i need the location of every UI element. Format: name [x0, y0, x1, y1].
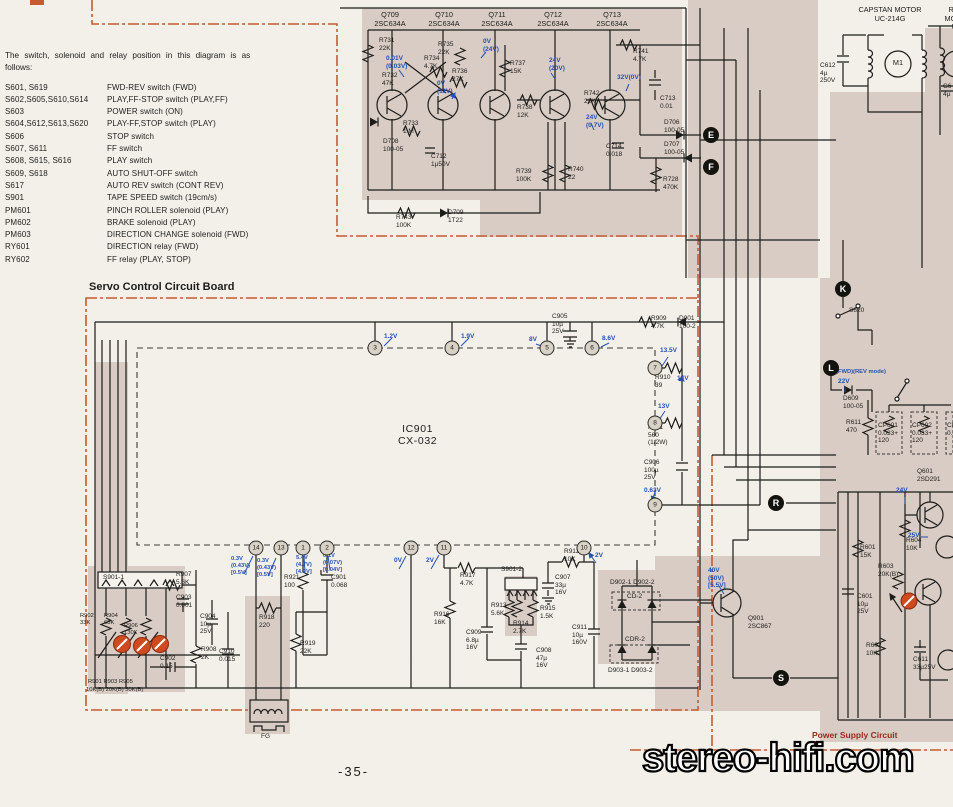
label-cp6: CP6 0.0: [947, 422, 953, 437]
legend-switch-id: S602,S605,S610,S614: [5, 94, 107, 106]
label-q710: Q710 2SC634A: [428, 11, 459, 28]
label-d708: D708 100-05: [383, 138, 403, 153]
legend-switch-desc: FF relay (PLAY, STOP): [107, 254, 191, 266]
label-r734: R734 4.7K: [424, 55, 440, 70]
terminal-r: R: [768, 495, 784, 511]
label-c713: C713 0.01: [660, 95, 676, 110]
legend-switch-id: S609, S618: [5, 168, 107, 180]
terminal-e: E: [703, 127, 719, 143]
ic-pin-9: 9: [648, 498, 663, 513]
label-r740: R740 22: [568, 166, 584, 181]
terminal-f: F: [703, 159, 719, 175]
label-c903: C903 0.001: [176, 594, 192, 609]
watermark: stereo-hifi.com: [642, 736, 914, 781]
label-c910: C910 0.015: [219, 648, 235, 663]
label-r602: R602 10K: [866, 642, 882, 657]
label-24v: 24V (20V): [549, 57, 565, 72]
ic-pin-7: 7: [648, 361, 663, 376]
label-40v: 40V (50V) [5.5V]: [708, 567, 726, 590]
label-r914: R914 2.7K: [513, 620, 529, 635]
legend: The switch, solenoid and relay position …: [5, 50, 329, 266]
label-c712: C712 1µ50V: [431, 153, 450, 168]
label-1.9v: 1.9V: [461, 333, 474, 341]
schematic-page: The switch, solenoid and relay position …: [0, 0, 953, 807]
label-q713: Q713 2SC634A: [596, 11, 627, 28]
label-s901-1: S901-1: [103, 574, 124, 582]
legend-intro: The switch, solenoid and relay position …: [5, 50, 329, 75]
label-c6: C6 4µ: [943, 83, 951, 98]
legend-switch-id: PM602: [5, 217, 107, 229]
label-r733: R733 1 M: [403, 120, 419, 135]
label-r921: R921 100: [284, 574, 300, 589]
label-c911: C911 10µ 160V: [572, 624, 587, 647]
legend-switch-desc: PLAY-FF,STOP switch (PLAY): [107, 118, 216, 130]
legend-row: S606STOP switch: [5, 131, 329, 143]
label-0.01v: 0.01V (0.03V): [386, 55, 407, 70]
label-d609: D609 100-05: [843, 395, 863, 410]
label-d706: D706 100-05: [664, 119, 684, 134]
ic-pin-11: 11: [437, 541, 452, 556]
label-r913: R913 5.6K: [491, 602, 507, 617]
ic-pin-3: 3: [368, 341, 383, 356]
label-r916: R916 16K: [434, 611, 450, 626]
label-r915: R915 1.5K: [540, 605, 556, 620]
label-c905: C905 10µ 25V: [552, 313, 568, 336]
legend-row: S901TAPE SPEED switch (19cm/s): [5, 192, 329, 204]
legend-switch-id: S604,S612,S613,S620: [5, 118, 107, 130]
label-c909: C909 6.8µ 16V: [466, 629, 482, 652]
label-32v: 32V(0V): [617, 74, 641, 82]
label-cd-2: CD-2: [627, 593, 642, 601]
label-cp602: CP602 0.033+ 120: [912, 422, 932, 445]
legend-switch-desc: BRAKE solenoid (PLAY): [107, 217, 196, 229]
label-d901: D901 100-2: [679, 315, 696, 330]
legend-switch-id: PM601: [5, 205, 107, 217]
ic901-outline: [137, 348, 655, 545]
label-22v: 22V: [838, 378, 850, 386]
label-r601: R601 15K: [860, 544, 876, 559]
page-number: -35-: [338, 764, 369, 779]
legend-row: S608, S615, S616PLAY switch: [5, 155, 329, 167]
ic-pin-14: 14: [249, 541, 264, 556]
label-0.3v: 0.3V (0.43V) [0.5V]: [257, 558, 276, 578]
legend-switch-desc: DIRECTION CHANGE solenoid (FWD): [107, 229, 248, 241]
label-r604: R604 10K: [906, 537, 922, 552]
terminal-l: L: [823, 360, 839, 376]
label-13.5v: 13.5V: [660, 347, 677, 355]
label-0.63v: 0.63V: [644, 487, 661, 495]
label-r907: R907 5.6K: [176, 571, 192, 586]
label-5.4v: 5.4V (4.7V) [4.2V]: [296, 555, 312, 575]
legend-switch-desc: FWD-REV switch (FWD): [107, 82, 197, 94]
label-10k: 10K(B) 20K(B) 50K(B): [86, 687, 143, 694]
label-d709: D709 1T22: [448, 209, 464, 224]
label-r742: R742 22K: [584, 90, 600, 105]
label-r901: R901 R903 R905: [88, 679, 133, 686]
legend-switch-desc: TAPE SPEED switch (19cm/s): [107, 192, 217, 204]
legend-switch-id: S601, S619: [5, 82, 107, 94]
ic-pin-1: 1: [296, 541, 311, 556]
label-capstan: CAPSTAN MOTOR UC-214G: [859, 6, 922, 23]
legend-row: RY601DIRECTION relay (FWD): [5, 241, 329, 253]
label-r919: R919 22K: [300, 640, 316, 655]
legend-switch-desc: PLAY switch: [107, 155, 152, 167]
legend-switch-id: S607, S611: [5, 143, 107, 155]
legend-switch-id: S608, S615, S616: [5, 155, 107, 167]
ic-pin-10: 10: [577, 541, 592, 556]
ic-pin-5: 5: [540, 341, 555, 356]
label-d902-1: D902-1 D902-2: [610, 579, 654, 587]
label-r603: R603 20K(B): [878, 563, 898, 578]
legend-switch-desc: PLAY,FF-STOP switch (PLAY,FF): [107, 94, 228, 106]
label-c904: C904 10µ 25V: [200, 613, 216, 636]
label-r738: R738 12K: [517, 104, 533, 119]
label-0v: 0V: [394, 557, 402, 565]
label-1.2v: 1.2V: [384, 333, 397, 341]
label-r909: R909 4.7K: [651, 315, 667, 330]
label-0.3v: 0.3V (0.43V) [0.5V]: [231, 556, 250, 576]
legend-row: S602,S605,S610,S614PLAY,FF-STOP switch (…: [5, 94, 329, 106]
ic-pin-2: 2: [320, 541, 335, 556]
legend-row: S603POWER switch (ON): [5, 106, 329, 118]
label-8.6v: 8.6V: [602, 335, 615, 343]
label-14v: 14V: [677, 375, 689, 383]
legend-switch-id: S617: [5, 180, 107, 192]
label-r918: R918 220: [259, 614, 275, 629]
label-r910: R910 39: [655, 374, 671, 389]
label-r732: R732 47K: [382, 72, 398, 87]
label-q601: Q601 2SD291: [917, 468, 941, 483]
label-c714: C714 0.018: [606, 143, 622, 158]
legend-row: S607, S611FF switch: [5, 143, 329, 155]
label-r728: R728 470K: [663, 176, 679, 191]
legend-switch-desc: POWER switch (ON): [107, 106, 183, 118]
legend-switch-desc: AUTO SHUT-OFF switch: [107, 168, 198, 180]
label-c908: C908 47µ 16V: [536, 647, 552, 670]
ic-pin-13: 13: [274, 541, 289, 556]
label-r739: R739 100K: [516, 168, 532, 183]
legend-row: S601, S619FWD-REV switch (FWD): [5, 82, 329, 94]
label-r908: R908 2K: [201, 646, 217, 661]
label-0v: 0V (24V): [483, 38, 499, 53]
border-tick: [30, 0, 44, 5]
legend-switch-id: RY602: [5, 254, 107, 266]
label-q711: Q711 2SC634A: [481, 11, 512, 28]
label-c901: C901 0.068: [331, 574, 347, 589]
label-q712: Q712 2SC634A: [537, 11, 568, 28]
label-24v: 24V (0.7V): [586, 114, 604, 129]
legend-switch-id: RY601: [5, 241, 107, 253]
label-m1: M1: [893, 59, 903, 68]
label-fg: FG: [261, 733, 270, 741]
legend-switch-id: S901: [5, 192, 107, 204]
label-q901: Q901 2SC867: [748, 615, 772, 630]
label-c907: C907 33µ 16V: [555, 574, 571, 597]
label-r917: R917 4.7K: [460, 572, 476, 587]
label-2v: 2V: [595, 552, 603, 560]
label-reel: REEL MOTOR UC-: [944, 6, 953, 32]
label-cdr-2: CDR-2: [625, 636, 645, 644]
ic-pin-4: 4: [445, 341, 460, 356]
label-d707: D707 100-05: [664, 141, 684, 156]
label-r906: R906 130K: [124, 623, 138, 637]
servo-board-title: Servo Control Circuit Board: [89, 281, 234, 293]
terminal-k: K: [835, 281, 851, 297]
ic-pin-6: 6: [585, 341, 600, 356]
legend-row: PM603DIRECTION CHANGE solenoid (FWD): [5, 229, 329, 241]
legend-row: PM602BRAKE solenoid (PLAY): [5, 217, 329, 229]
label-c902: C902 0.15: [160, 655, 176, 670]
label-r904: R904 68K: [104, 613, 118, 627]
label-0v: 0V (11V): [437, 80, 453, 95]
legend-switch-id: PM603: [5, 229, 107, 241]
ic901-label: IC901 CX-032: [398, 423, 437, 448]
label-r731: R731 22K: [379, 37, 395, 52]
legend-row: PM601PINCH ROLLER solenoid (PLAY): [5, 205, 329, 217]
legend-switch-id: S603: [5, 106, 107, 118]
label-r741: R741 4.7K: [633, 48, 649, 63]
label-r736: R736 27K: [452, 68, 468, 83]
label-24v: 24V: [896, 487, 908, 495]
ic-pin-8: 8: [648, 416, 663, 431]
legend-rows: S601, S619FWD-REV switch (FWD)S602,S605,…: [5, 82, 329, 266]
label-s901-2: S901-2: [501, 566, 522, 574]
legend-row: S604,S612,S613,S620PLAY-FF,STOP switch (…: [5, 118, 329, 130]
legend-switch-desc: PINCH ROLLER solenoid (PLAY): [107, 205, 228, 217]
label-2v: 2V: [426, 557, 434, 565]
label-c601: C601 10µ 25V: [857, 593, 873, 616]
label-d903-1: D903-1 D903-2: [608, 667, 652, 675]
label-r902: R902 33K: [80, 613, 94, 627]
label-cp601: CP601 0.033+ 120: [878, 422, 898, 445]
terminal-s: S: [773, 670, 789, 686]
label-r735: R735 22K: [438, 41, 454, 56]
label-c906: C906 100µ 25V: [644, 459, 660, 482]
label-: (FWD)(REV mode): [836, 369, 886, 376]
legend-switch-desc: FF switch: [107, 143, 142, 155]
legend-switch-id: S606: [5, 131, 107, 143]
legend-switch-desc: AUTO REV switch (CONT REV): [107, 180, 224, 192]
legend-switch-desc: DIRECTION relay (FWD): [107, 241, 198, 253]
label-s620: S620: [849, 307, 864, 315]
label-8v: 8V: [529, 336, 537, 344]
label-c611: C611 33µ25V: [913, 656, 936, 671]
label-r737: R737 15K: [510, 60, 526, 75]
legend-row: S609, S618AUTO SHUT-OFF switch: [5, 168, 329, 180]
label-0.1v: 0.1V (0.07V) [0.04V]: [323, 553, 342, 573]
label-r611: R611 470: [846, 419, 861, 434]
label-13v: 13V: [658, 403, 670, 411]
label-r743: R743 100K: [396, 214, 412, 229]
legend-row: RY602FF relay (PLAY, STOP): [5, 254, 329, 266]
label-c612: C612 4µ 250V: [820, 62, 836, 85]
legend-switch-desc: STOP switch: [107, 131, 154, 143]
label-q709: Q709 2SC634A: [374, 11, 405, 28]
legend-row: S617AUTO REV switch (CONT REV): [5, 180, 329, 192]
ic-pin-12: 12: [404, 541, 419, 556]
